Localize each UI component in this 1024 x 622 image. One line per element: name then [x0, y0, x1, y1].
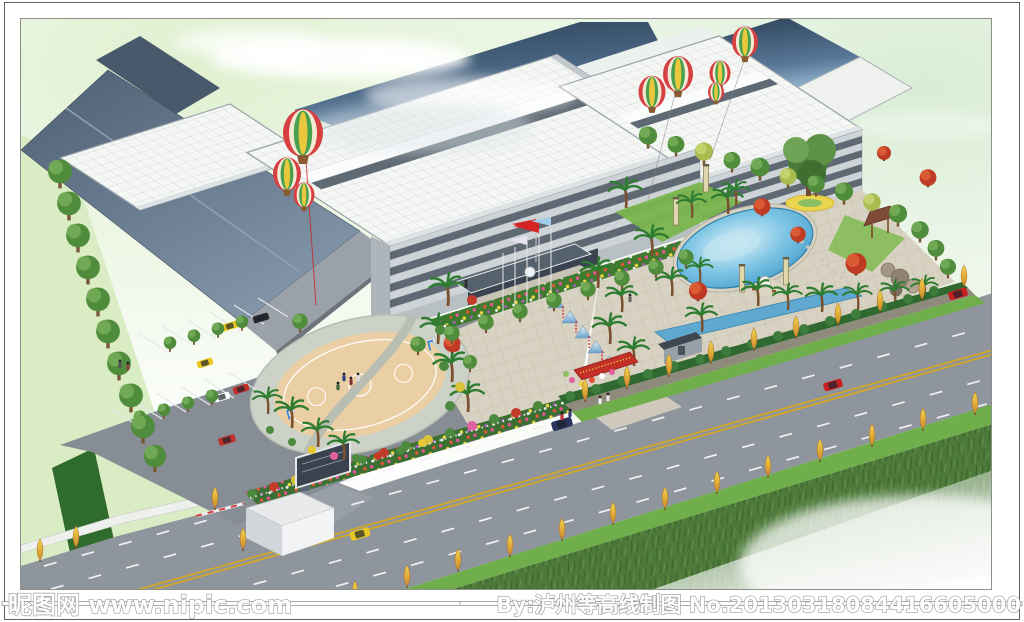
watermarks: 昵图网 www.nipic.com By:泸州等高线制图 No.20130318… [2, 591, 1022, 619]
campus-rendering: 昵图网 www.nipic.com By:泸州等高线制图 No.20130318… [0, 0, 1024, 622]
stock-image-page: 昵图网 www.nipic.com By:泸州等高线制图 No.20130318… [0, 0, 1024, 622]
watermark-author: By:泸州等高线制图 No.20130318084416605000 [496, 593, 1021, 617]
watermark-site: 昵图网 www.nipic.com [8, 591, 292, 619]
